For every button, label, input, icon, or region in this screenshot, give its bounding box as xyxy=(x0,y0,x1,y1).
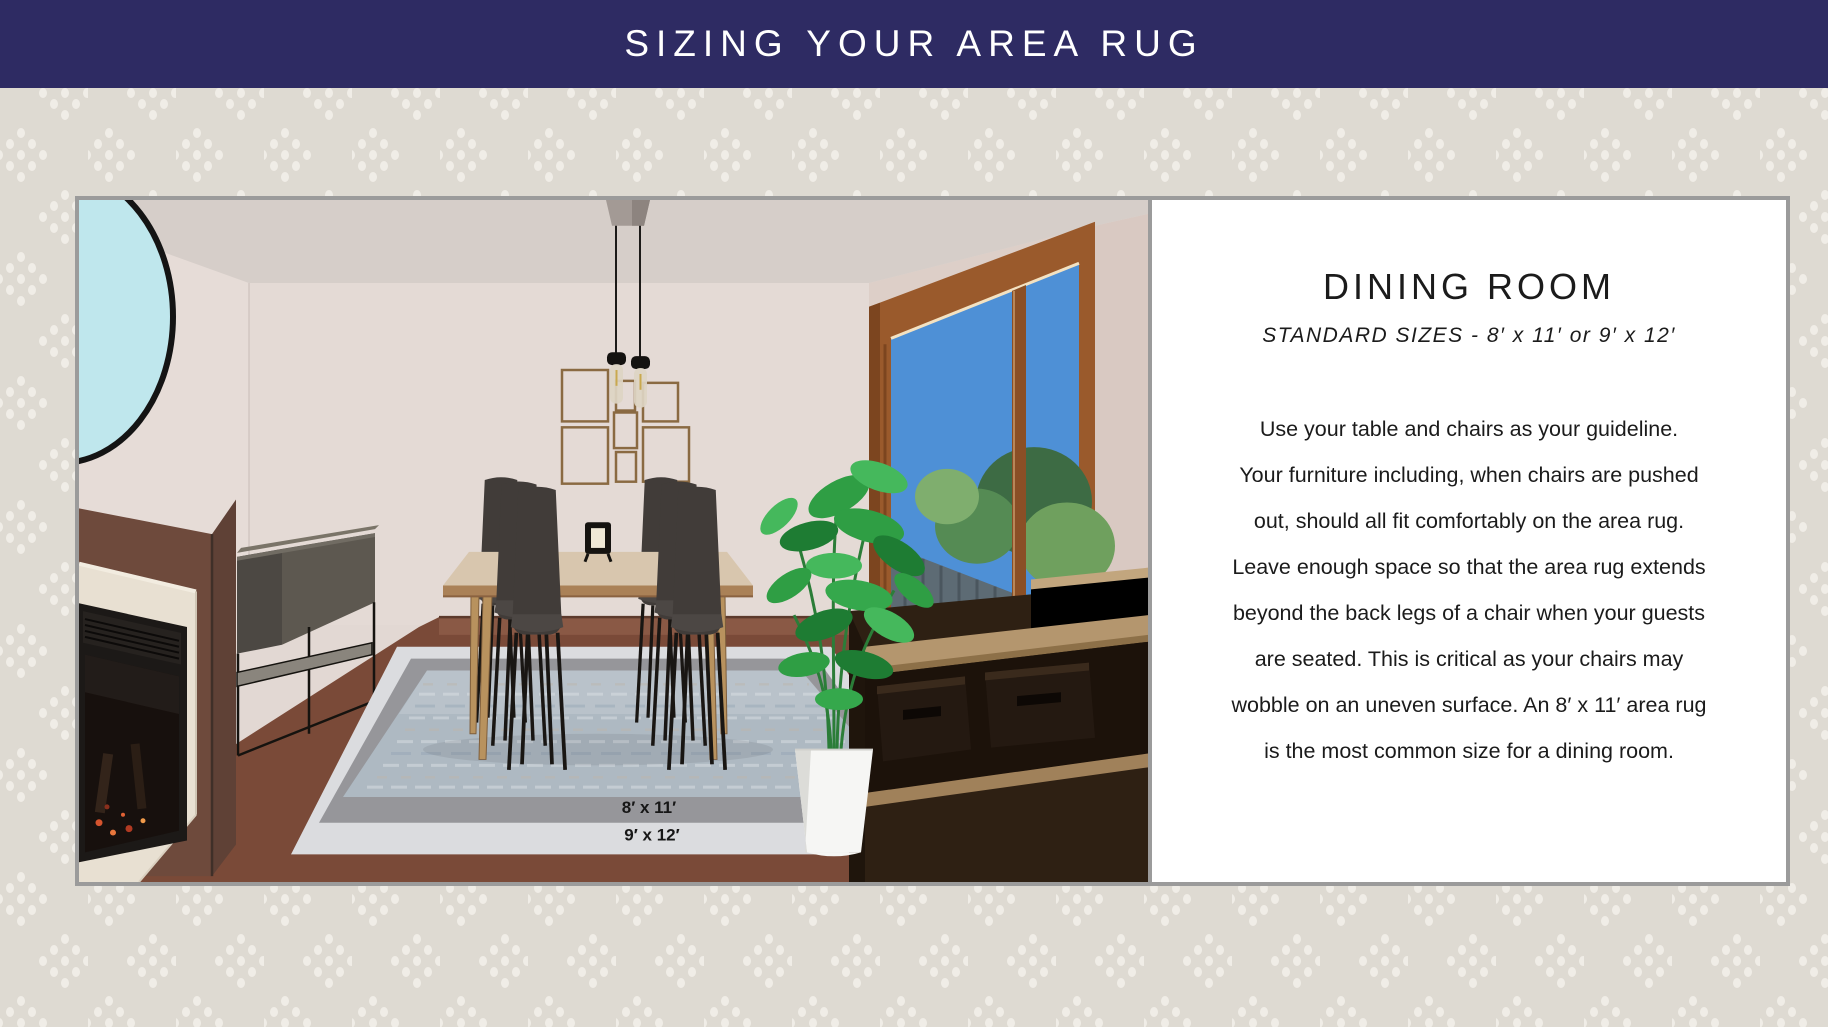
body-line: is the most common size for a dining roo… xyxy=(1180,728,1758,774)
text-panel: DINING ROOM STANDARD SIZES - 8′ x 11′ or… xyxy=(1148,200,1786,882)
body-line: Use your table and chairs as your guidel… xyxy=(1180,406,1758,452)
header-bar: SIZING YOUR AREA RUG xyxy=(0,0,1828,88)
white-planter xyxy=(795,750,873,857)
rug-size-label-8x11: 8′ x 11′ xyxy=(622,798,676,817)
fireplace xyxy=(79,499,236,882)
panel-body: Use your table and chairs as your guidel… xyxy=(1180,406,1758,774)
rug-size-label-9x12: 9′ x 12′ xyxy=(624,826,679,845)
body-line: out, should all fit comfortably on the a… xyxy=(1180,498,1758,544)
body-line: Leave enough space so that the area rug … xyxy=(1180,544,1758,590)
panel-title: DINING ROOM xyxy=(1180,266,1758,308)
panel-subtitle: STANDARD SIZES - 8′ x 11′ or 9′ x 12′ xyxy=(1180,324,1758,348)
dining-room-illustration: 8′ x 11′ 9′ x 12′ xyxy=(79,200,1148,882)
page-title: SIZING YOUR AREA RUG xyxy=(624,23,1203,65)
body-line: beyond the back legs of a chair when you… xyxy=(1180,590,1758,636)
content-card: 8′ x 11′ 9′ x 12′ DINING ROOM STANDARD S… xyxy=(75,196,1790,886)
body-line: wobble on an uneven surface. An 8′ x 11′… xyxy=(1180,682,1758,728)
body-line: Your furniture including, when chairs ar… xyxy=(1180,452,1758,498)
body-line: are seated. This is critical as your cha… xyxy=(1180,636,1758,682)
